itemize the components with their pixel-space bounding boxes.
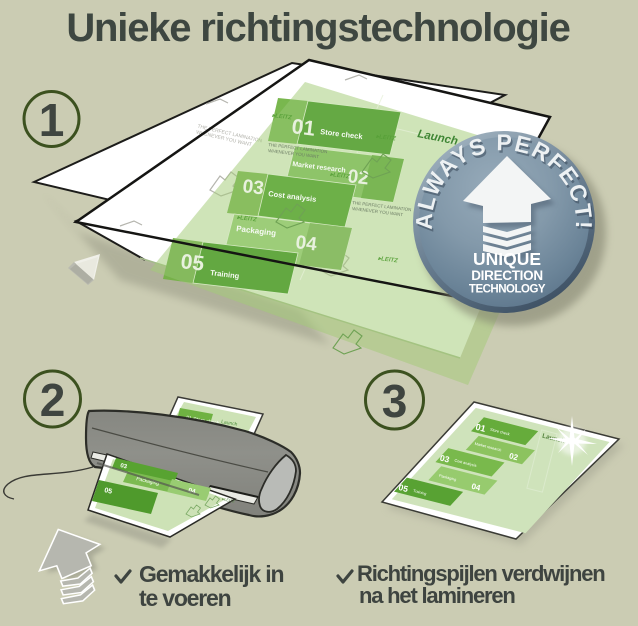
svg-text:2: 2 (40, 374, 66, 426)
svg-text:TECHNOLOGY: TECHNOLOGY (469, 284, 546, 296)
svg-text:UNIQUE: UNIQUE (473, 249, 541, 269)
svg-text:te voeren: te voeren (139, 585, 231, 611)
svg-text:Gemakkelijk in: Gemakkelijk in (139, 561, 283, 587)
svg-text:DIRECTION: DIRECTION (471, 268, 543, 283)
svg-text:na het lamineren: na het lamineren (359, 583, 515, 608)
svg-text:Unieke richtingstechnologie: Unieke richtingstechnologie (66, 6, 569, 50)
svg-text:3: 3 (382, 375, 408, 427)
svg-text:1: 1 (39, 94, 65, 146)
